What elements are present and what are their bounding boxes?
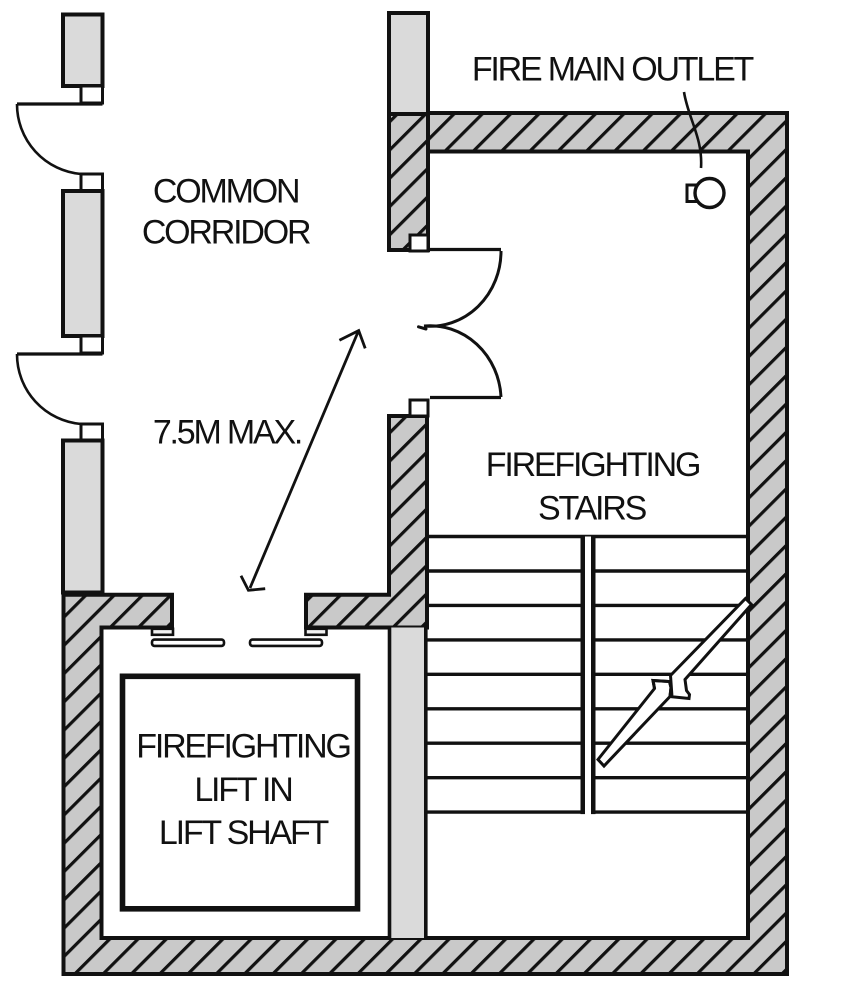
svg-text:FIREFIGHTING: FIREFIGHTING [486, 446, 699, 484]
svg-text:FIRE MAIN OUTLET: FIRE MAIN OUTLET [472, 51, 754, 89]
svg-text:STAIRS: STAIRS [538, 489, 647, 527]
svg-text:COMMON: COMMON [153, 173, 298, 211]
svg-text:LIFT SHAFT: LIFT SHAFT [159, 814, 329, 852]
svg-text:7.5M MAX.: 7.5M MAX. [153, 413, 301, 451]
svg-text:CORRIDOR: CORRIDOR [142, 214, 310, 252]
svg-text:FIREFIGHTING: FIREFIGHTING [136, 728, 349, 766]
svg-text:LIFT IN: LIFT IN [194, 771, 291, 809]
